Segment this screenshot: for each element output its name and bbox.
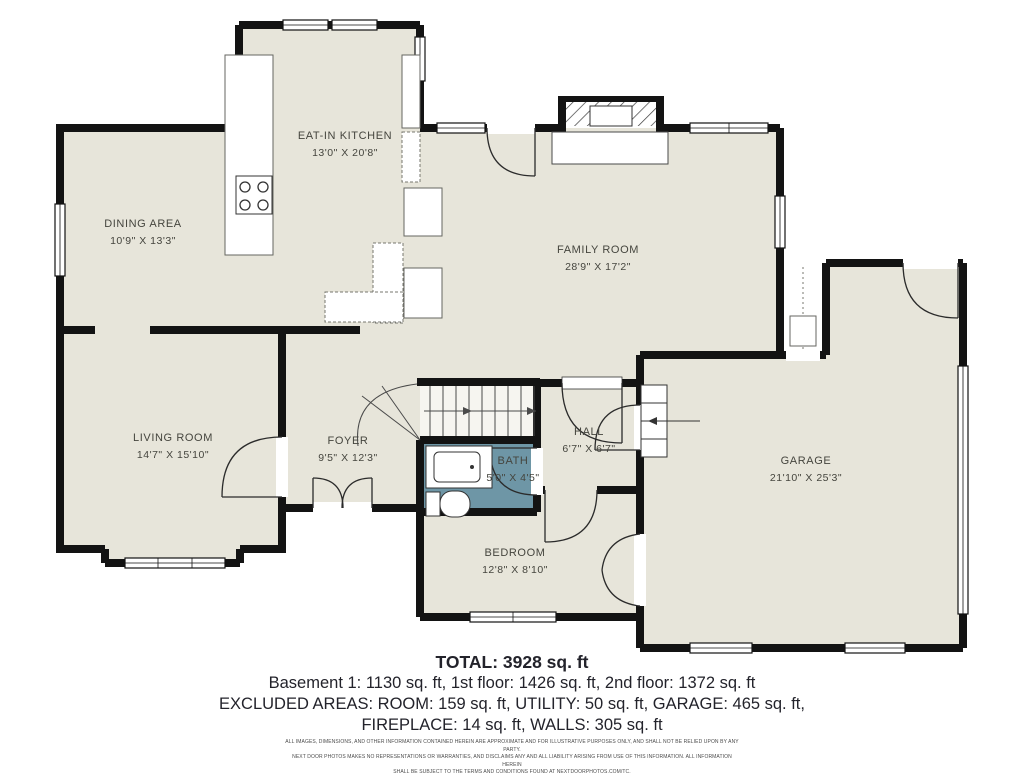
room-foyer — [282, 330, 420, 508]
garage-door-opening — [903, 257, 958, 269]
label-family: FAMILY ROOM — [557, 244, 639, 256]
living-foyer-opening — [276, 437, 288, 497]
dining-window — [55, 204, 65, 276]
hearth — [552, 132, 668, 164]
garage-window-right — [958, 366, 968, 614]
dims-bath: 5'0" X 4'5" — [486, 472, 539, 484]
dims-kitchen: 13'0" X 20'8" — [312, 147, 378, 159]
label-living: LIVING ROOM — [133, 432, 213, 444]
floor-areas: Basement 1: 1130 sq. ft, 1st floor: 1426… — [0, 673, 1024, 694]
faucet — [470, 465, 474, 469]
kitchen-counter — [402, 55, 420, 128]
pantry-cabinet-1 — [404, 188, 442, 236]
dims-hall: 6'7" X 6'7" — [562, 443, 615, 455]
stove-icon — [236, 176, 272, 214]
kitchen-window-2 — [332, 20, 377, 30]
disclaimer-line-1: ALL IMAGES, DIMENSIONS, AND OTHER INFORM… — [282, 739, 742, 754]
dims-dining: 10'9" X 13'3" — [110, 235, 176, 247]
excluded-areas-2: FIREPLACE: 14 sq. ft, WALLS: 305 sq. ft — [0, 715, 1024, 736]
pantry-cabinet-2 — [404, 268, 442, 318]
area-summary: TOTAL: 3928 sq. ft Basement 1: 1130 sq. … — [0, 652, 1024, 736]
dims-bedroom: 12'8" X 8'10" — [482, 564, 548, 576]
family-window-right — [775, 196, 785, 248]
kitchen-window-1 — [283, 20, 328, 30]
hall-family-opening — [562, 377, 622, 389]
kitchen-island — [225, 55, 273, 255]
closet-opening — [634, 534, 646, 606]
disclaimer: ALL IMAGES, DIMENSIONS, AND OTHER INFORM… — [282, 739, 742, 777]
dims-foyer: 9'5" X 12'3" — [318, 452, 378, 464]
label-kitchen: EAT-IN KITCHEN — [298, 130, 392, 142]
disclaimer-line-2: NEXT DOOR PHOTOS MAKES NO REPRESENTATION… — [282, 754, 742, 769]
toilet-bowl — [440, 491, 470, 517]
family-window-top — [690, 123, 768, 133]
water-heater — [790, 316, 816, 346]
label-dining: DINING AREA — [104, 218, 182, 230]
total-area: TOTAL: 3928 sq. ft — [0, 652, 1024, 673]
family-window-left — [437, 123, 485, 133]
label-hall: HALL — [574, 426, 604, 438]
excluded-areas-1: EXCLUDED AREAS: ROOM: 159 sq. ft, UTILIT… — [0, 694, 1024, 715]
dims-family: 28'9" X 17'2" — [565, 261, 631, 273]
dims-garage: 21'10" X 25'3" — [770, 472, 842, 484]
bedroom-window — [470, 612, 556, 622]
firebox — [590, 106, 632, 126]
dims-living: 14'7" X 15'10" — [137, 449, 209, 461]
disclaimer-line-3: SHALL BE SUBJECT TO THE TERMS AND CONDIT… — [282, 769, 742, 777]
living-bay-window — [125, 558, 225, 568]
floor-plan: EAT-IN KITCHEN 13'0" X 20'8" DINING AREA… — [0, 0, 1024, 660]
kitchen-upper-cabinet — [402, 132, 420, 182]
utility-opening — [786, 349, 820, 361]
label-bedroom: BEDROOM — [484, 547, 545, 559]
label-foyer: FOYER — [328, 435, 369, 447]
fireplace-icon — [552, 102, 668, 164]
corner-counter-horizontal — [325, 292, 403, 322]
family-door-opening — [487, 122, 535, 134]
label-bath: BATH — [498, 455, 529, 467]
toilet-tank — [426, 492, 440, 516]
label-garage: GARAGE — [781, 455, 832, 467]
